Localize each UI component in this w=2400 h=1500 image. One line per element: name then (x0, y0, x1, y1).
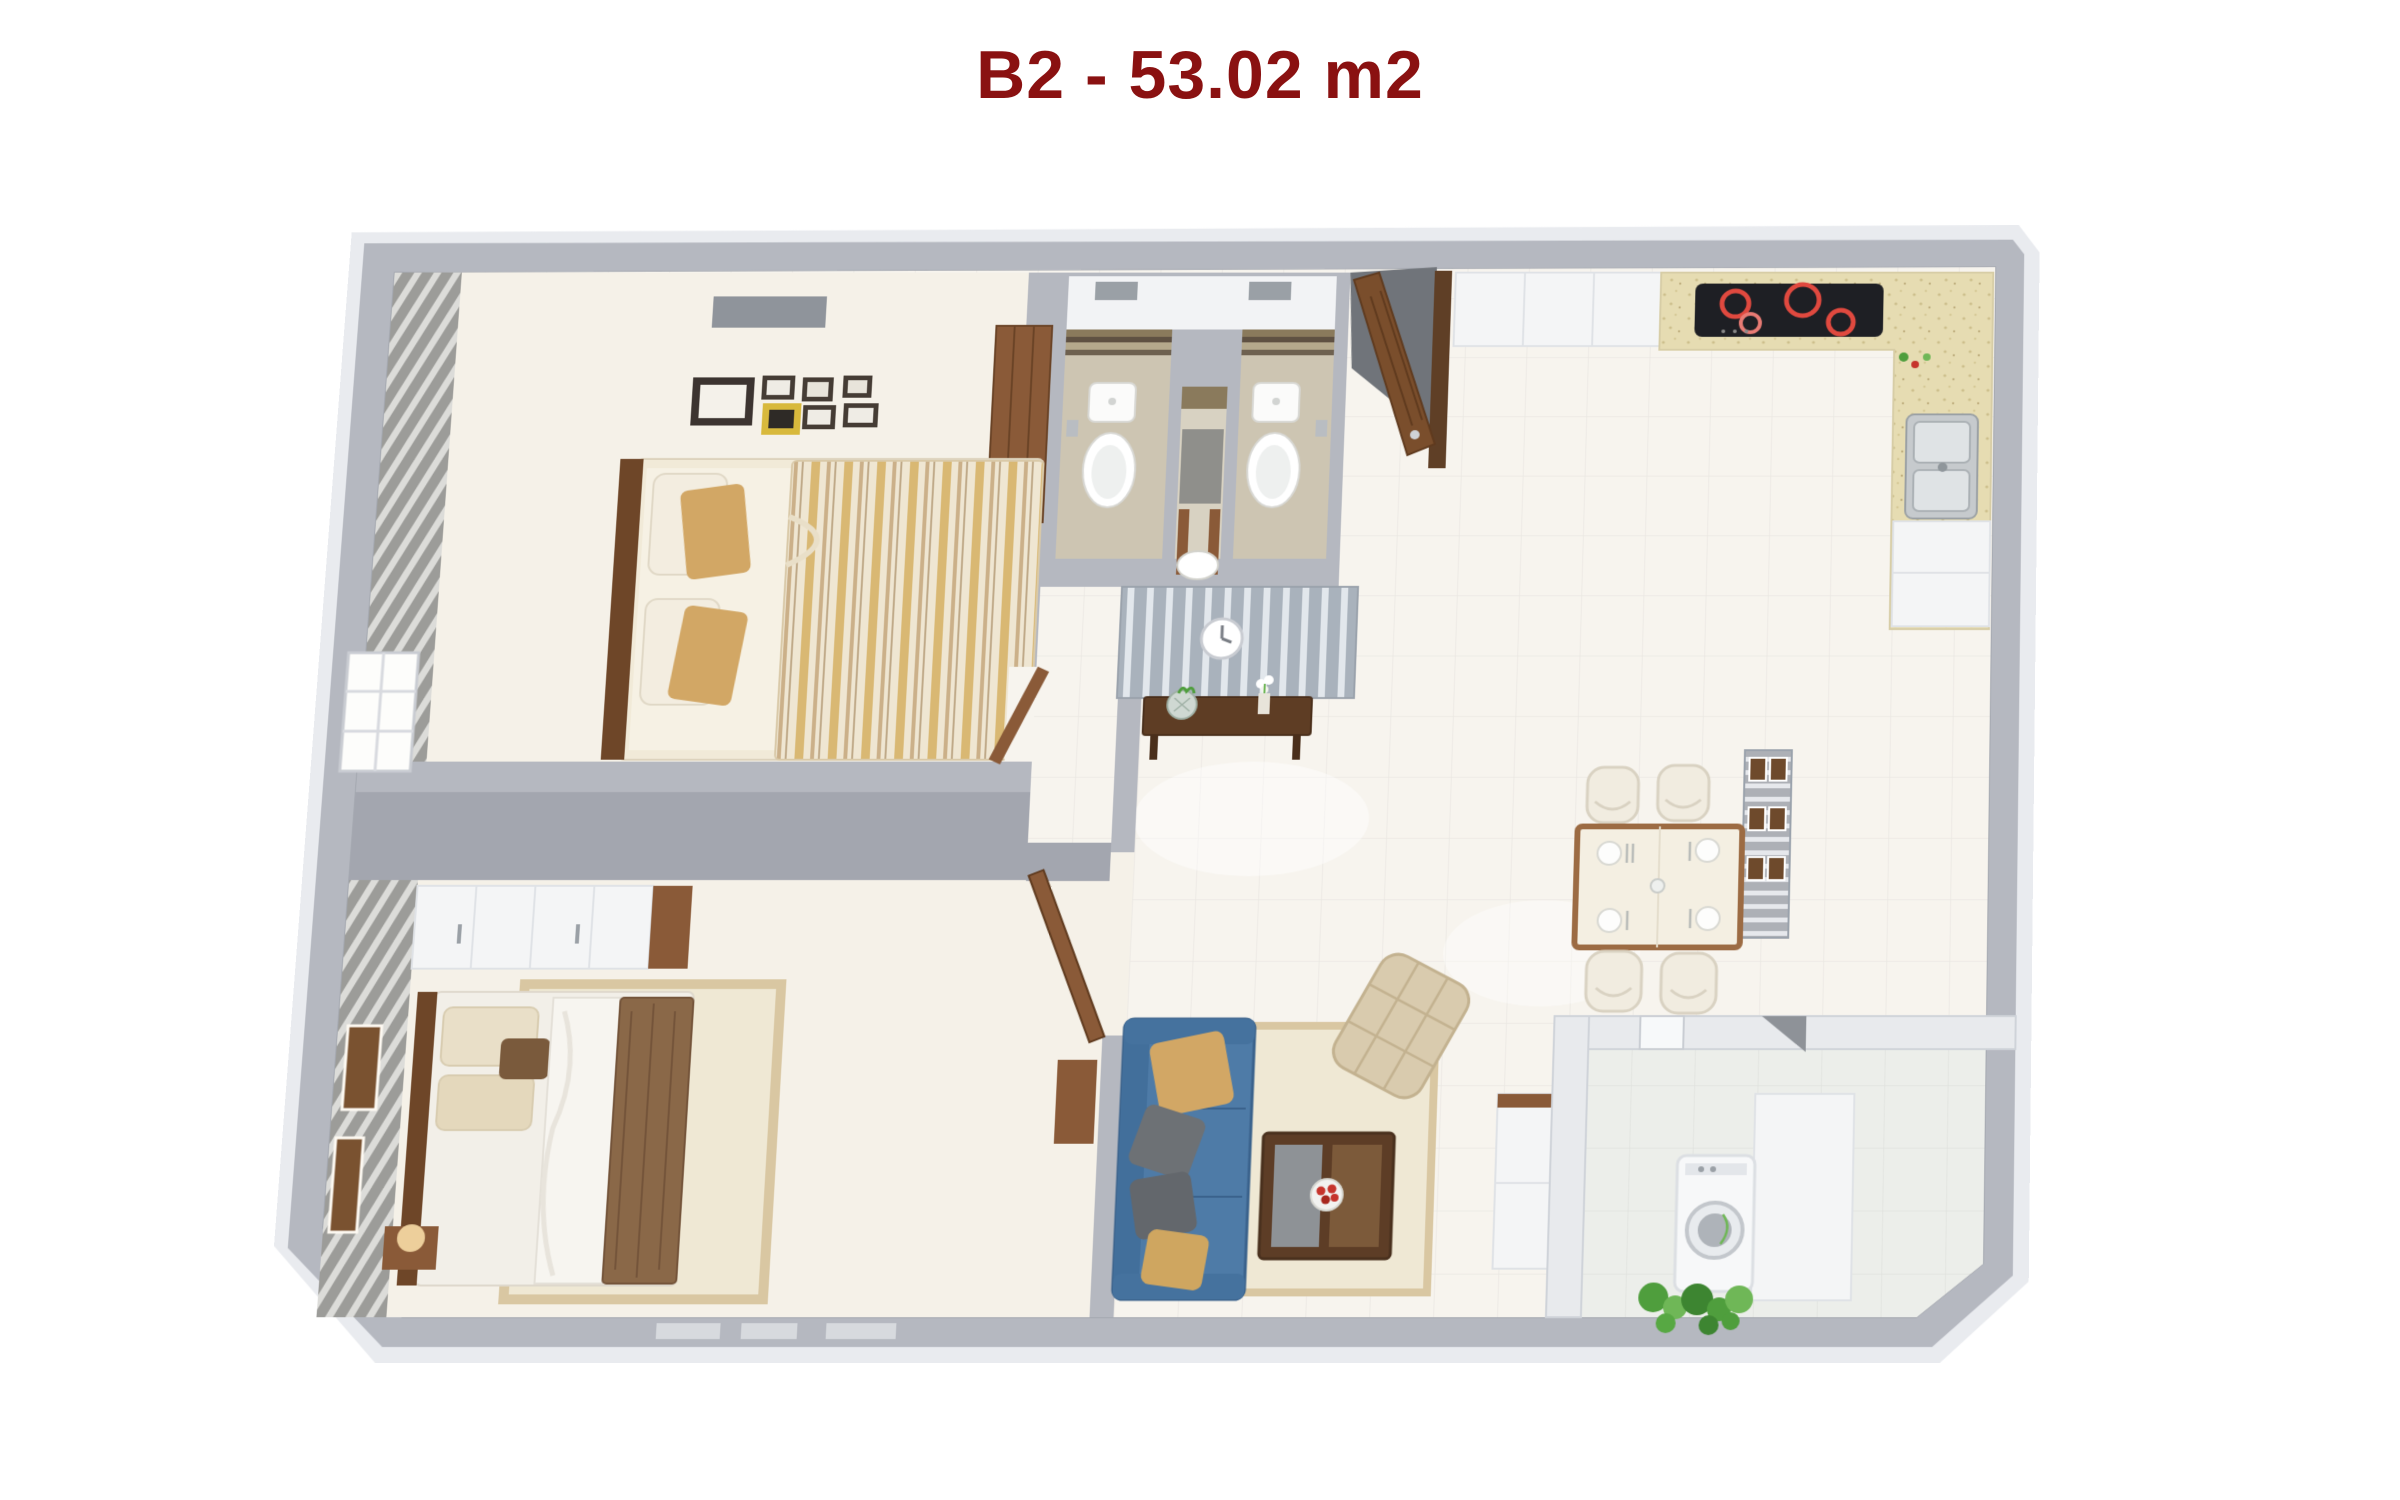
kitchen-sink (1905, 414, 1978, 518)
toilet-paper-holder (1066, 420, 1078, 437)
ceiling-vent-panel (712, 296, 827, 327)
kitchen-upper-cabinets (1454, 273, 1662, 346)
sofa (1112, 1019, 1255, 1299)
niche-mirror (1179, 429, 1224, 503)
floorplan-3d-render (280, 240, 2024, 1350)
page-title: B2 - 53.02 m2 (0, 36, 2400, 114)
dining-chair (1657, 765, 1709, 820)
plate (1597, 909, 1621, 932)
sink-niche (1174, 387, 1228, 580)
picture-frame (1768, 857, 1785, 880)
plate (1696, 907, 1720, 930)
toilet-paper-holder (1315, 420, 1327, 437)
balcony-wall-opening (1640, 1016, 1684, 1049)
cooktop (1694, 284, 1883, 337)
bathroom-vent-window (1249, 282, 1292, 300)
bottom-wall-window-mark (656, 1323, 721, 1339)
kitchen-base-cabinet (1892, 521, 1991, 626)
dining-chair (1660, 953, 1717, 1013)
wall-art (342, 1026, 382, 1110)
tile-accent-band (1241, 329, 1334, 355)
bed-1 (601, 459, 1044, 760)
plate (1695, 839, 1719, 862)
picture-frame (1770, 758, 1787, 781)
tile-accent-band (1065, 329, 1172, 355)
picture-frame (1748, 807, 1765, 830)
bottom-wall-window-mark (826, 1323, 897, 1339)
bottom-wall-window-mark (741, 1323, 798, 1339)
balcony-laundry (1545, 1016, 2015, 1335)
bathroom-1 (1055, 329, 1172, 558)
bathrooms (1054, 276, 1336, 579)
floorplan-svg (280, 240, 2024, 1350)
bed-1-pillow-tan (680, 483, 751, 580)
bed-1-striped-duvet (775, 461, 1044, 760)
bathroom-2 (1233, 329, 1335, 558)
wall-between-bedrooms (356, 762, 1032, 792)
dining-chair (1587, 767, 1639, 822)
wall-art (329, 1138, 364, 1232)
bed-2-pillow-brown (499, 1038, 551, 1079)
floorplan-page: B2 - 53.02 m2 (0, 0, 2400, 1500)
hall-cabinet (1492, 1094, 1555, 1269)
picture-frame (1747, 857, 1764, 880)
sofa-pillow-tan (1139, 1228, 1210, 1291)
toilet (1081, 383, 1139, 507)
bathroom-vent-window (1095, 282, 1138, 300)
bedroom-2-bulkhead (349, 792, 1030, 880)
flower-vase (1258, 693, 1271, 714)
plate (1597, 842, 1621, 865)
wardrobe-end-panel (648, 886, 693, 969)
sofa-pillow-tan (1148, 1030, 1235, 1118)
dining-chair (1585, 951, 1642, 1011)
table-vase (1651, 879, 1665, 892)
fruit-bowl (1310, 1179, 1343, 1210)
coffee-table (1259, 1133, 1395, 1259)
bed-2-pillow (436, 1075, 535, 1130)
dining-table (1574, 826, 1742, 947)
picture-frame (1769, 807, 1786, 830)
toilet (1246, 383, 1303, 507)
balcony-partition-wall (1546, 1016, 1589, 1317)
laundry-counter (1751, 1094, 1854, 1300)
bedroom-2-dresser (1054, 1060, 1098, 1144)
wash-basin (1177, 551, 1219, 579)
wall-clock (1201, 619, 1244, 659)
picture-frame (1749, 758, 1766, 781)
washing-machine (1674, 1156, 1755, 1292)
bed-2 (397, 992, 694, 1286)
